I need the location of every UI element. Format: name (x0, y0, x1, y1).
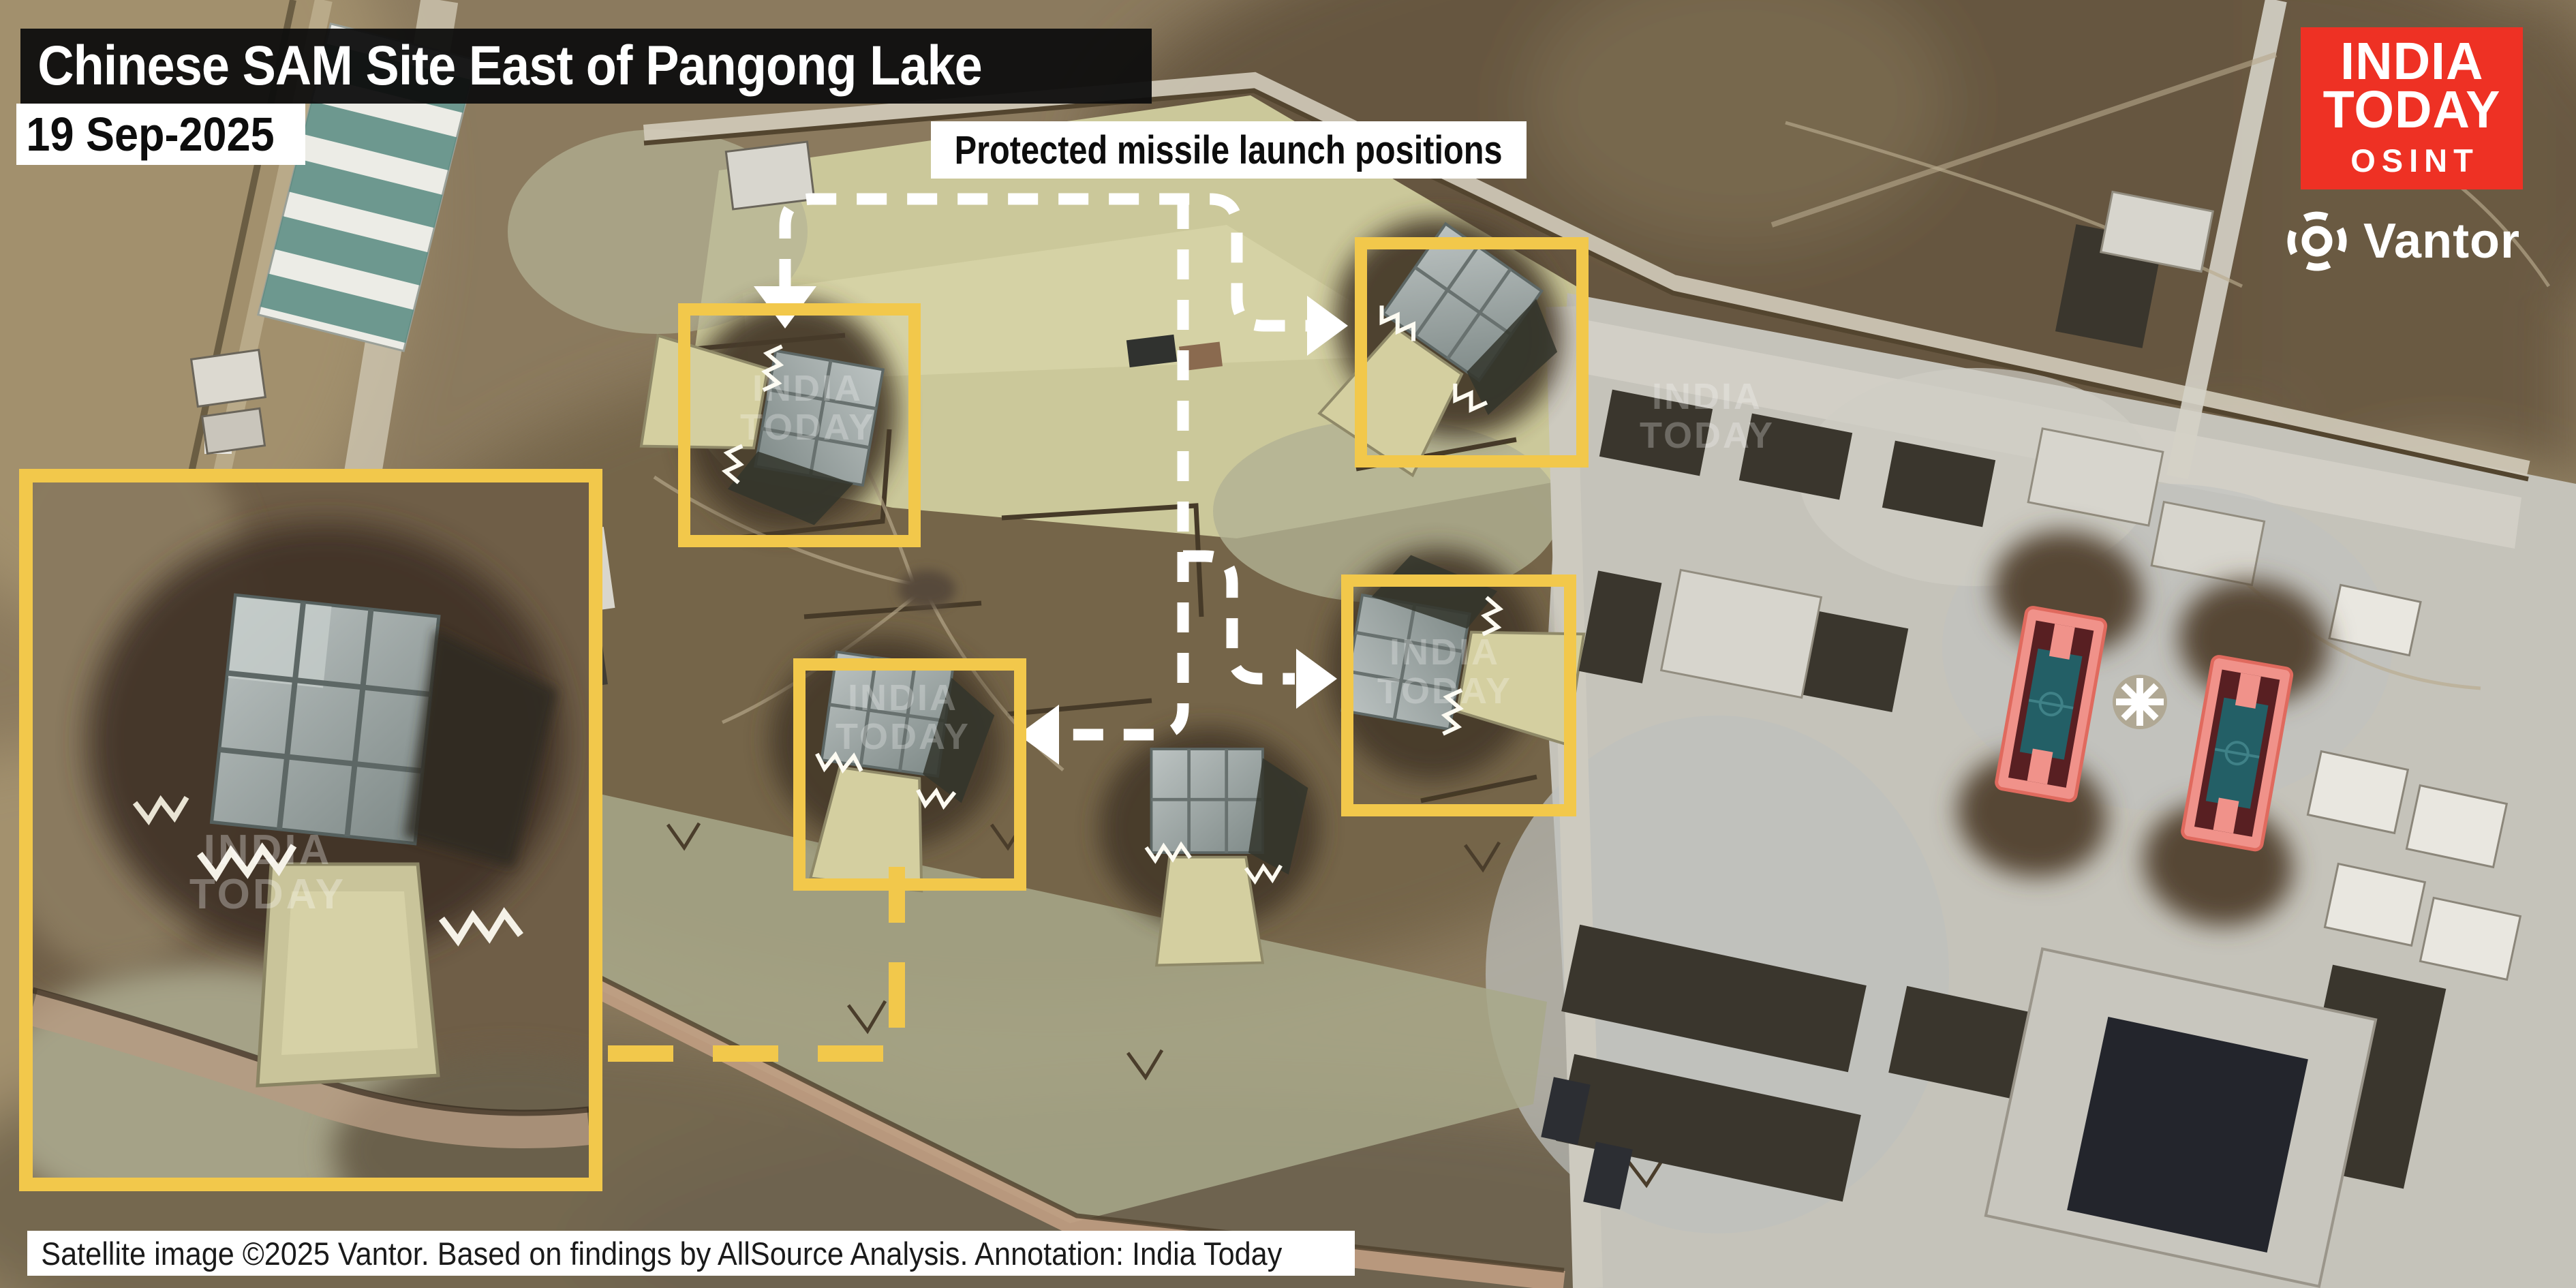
highlight-box-launch-position-4 (793, 658, 1026, 891)
osint-label: OSINT (2344, 142, 2479, 179)
callout-label-box: Protected missile launch positions (931, 121, 1527, 179)
title-banner: Chinese SAM Site East of Pangong Lake (20, 29, 1152, 104)
inset-zoom-panel: INDIA TODAY (19, 469, 602, 1191)
highlight-box-launch-position-3 (1341, 574, 1576, 816)
vantor-wordmark: Vantor (2363, 213, 2520, 269)
callout-label: Protected missile launch positions (955, 127, 1503, 173)
osint-graphic: INDIATODAY INDIATODAY INDIATODAY INDIATO… (0, 0, 2576, 1288)
highlight-box-launch-position-1 (678, 303, 921, 547)
india-today-logo-line1: INDIA (2340, 37, 2483, 86)
india-today-osint-logo: INDIA TODAY OSINT (2301, 27, 2523, 189)
inset-zoom-image: INDIA TODAY (33, 482, 589, 1178)
vantor-logo: Vantor (2284, 209, 2520, 274)
date-chip: 19 Sep-2025 (16, 104, 305, 165)
svg-text:INDIA: INDIA (1652, 376, 1762, 417)
vantor-icon (2284, 209, 2350, 274)
svg-text:TODAY: TODAY (189, 871, 346, 918)
india-today-logo-line2: TODAY (2323, 86, 2501, 134)
page-title: Chinese SAM Site East of Pangong Lake (20, 34, 982, 98)
image-date: 19 Sep-2025 (16, 107, 275, 162)
svg-text:TODAY: TODAY (1640, 415, 1775, 456)
caption-text: Satellite image ©2025 Vantor. Based on f… (27, 1235, 1282, 1272)
svg-text:INDIA: INDIA (204, 827, 333, 874)
caption-bar: Satellite image ©2025 Vantor. Based on f… (27, 1231, 1355, 1276)
highlight-box-launch-position-2 (1355, 237, 1589, 467)
